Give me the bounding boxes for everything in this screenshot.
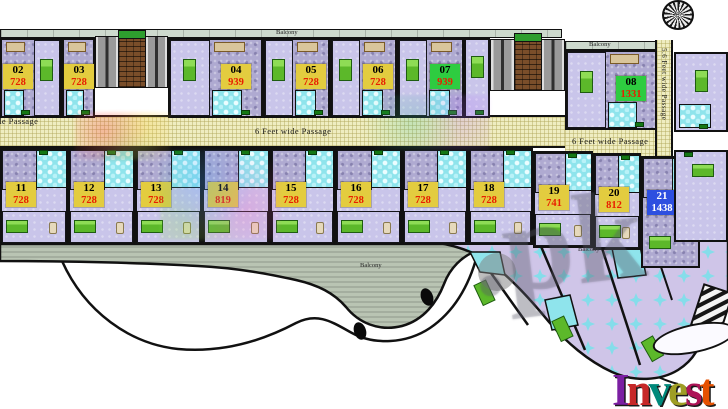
bedroom: [70, 211, 133, 243]
passage-label-vertical: 5.6 Feet wide Passage: [660, 48, 668, 120]
unit-area: 741: [539, 198, 569, 209]
passage-label-center: 6 Feet wide Passage: [255, 126, 331, 136]
unit-area: 1438: [647, 203, 677, 214]
unit-cell: 13728: [135, 148, 202, 245]
unit-number: 17: [408, 183, 438, 195]
bedroom: [595, 216, 639, 248]
bed: [6, 220, 28, 233]
balcony-label-bottom-center: Balcony: [360, 262, 382, 269]
unit-cell: 16728: [335, 148, 402, 245]
bathroom: [437, 150, 467, 188]
unit-cell: 15728: [270, 148, 335, 245]
unit-cell: 17728: [402, 148, 468, 245]
bed: [276, 220, 298, 233]
unit-label-chip: 12728: [74, 182, 104, 207]
stair-shaft: [118, 38, 146, 88]
unit-cell: 11728: [0, 148, 68, 245]
logo-letter: n: [627, 364, 649, 409]
bed: [692, 164, 714, 177]
bedroom: [337, 211, 400, 243]
unit-label-chip: 11728: [6, 182, 36, 207]
unit-cell: 12728: [68, 148, 135, 245]
bed: [649, 236, 671, 249]
elevator-bank-2: [490, 33, 565, 93]
unit-area: 728: [408, 195, 438, 206]
door: [684, 152, 693, 157]
bedroom: [137, 211, 200, 243]
logo-letter: t: [700, 364, 712, 409]
bathroom: [238, 150, 269, 188]
bedroom: [2, 211, 66, 243]
door: [107, 150, 116, 155]
figure: [574, 225, 582, 237]
unit-area: 728: [474, 195, 504, 206]
figure: [251, 222, 259, 234]
bedroom: [535, 214, 591, 246]
door: [440, 150, 449, 155]
figure: [622, 227, 630, 239]
bed: [74, 220, 96, 233]
unit-room: [674, 150, 728, 242]
unit-number: 14: [208, 183, 238, 195]
bedroom: [470, 211, 531, 243]
unit-area: 728: [141, 195, 171, 206]
bed: [208, 220, 230, 233]
door: [621, 155, 630, 160]
logo-letter: s: [685, 364, 700, 409]
elevator-car-icon: [95, 36, 119, 88]
elevator-car-icon: [541, 39, 565, 91]
bedroom: [404, 211, 466, 243]
floor-plan-canvas: Balcony Balcony 6 Feet wide Passage 6 Fe…: [0, 0, 728, 409]
elevator-car-icon: [490, 39, 515, 91]
unit-label-chip: 15728: [276, 182, 306, 207]
figure: [449, 222, 457, 234]
figure: [116, 222, 124, 234]
unit-label-chip: 19741: [539, 185, 569, 210]
logo-letter: e: [668, 364, 685, 409]
unit-number: 12: [74, 183, 104, 195]
unit-area: 728: [6, 195, 36, 206]
door: [174, 150, 183, 155]
door: [241, 150, 250, 155]
bathroom: [171, 150, 201, 188]
door: [308, 150, 317, 155]
unit-cell: 18728: [468, 148, 533, 245]
figure: [514, 222, 522, 234]
figure: [383, 222, 391, 234]
unit-area: 728: [341, 195, 371, 206]
unit-cell: 14819: [202, 148, 270, 245]
unit-number: 11: [6, 183, 36, 195]
bedroom: [204, 211, 268, 243]
door: [374, 150, 383, 155]
bathroom: [503, 150, 532, 188]
bathroom: [371, 150, 401, 188]
elevator-car-icon: [145, 36, 168, 88]
unit-number: 20: [599, 188, 629, 200]
unit-number: 16: [341, 183, 371, 195]
unit-label-chip: 17728: [408, 182, 438, 207]
unit-label-chip: 20812: [599, 187, 629, 212]
bed: [341, 220, 363, 233]
brand-logo: Invest: [612, 364, 712, 409]
unit-cell: 19741: [533, 151, 593, 248]
logo-letter: v: [649, 364, 669, 409]
passage-label-right: 6 Feet wide Passage: [572, 136, 648, 146]
stair-shaft: [514, 41, 542, 91]
logo-letter: I: [612, 364, 627, 409]
bed: [474, 220, 496, 233]
bathroom: [565, 153, 592, 191]
unit-number: 19: [539, 186, 569, 198]
passage-label-left: 6 Feet wide Passage: [0, 116, 38, 126]
bathroom: [104, 150, 134, 188]
unit-area: 812: [599, 200, 629, 211]
elevator-bank-1: [95, 30, 168, 90]
unit-cell: 20812: [593, 153, 641, 250]
balcony-label-top-left: Balcony: [276, 29, 298, 36]
unit-label-chip: 13728: [141, 182, 171, 207]
bed: [408, 220, 430, 233]
unit-number: 13: [141, 183, 171, 195]
unit-number: 18: [474, 183, 504, 195]
bathroom: [305, 150, 334, 188]
unit-label-chip: 211438: [647, 190, 677, 215]
bed: [599, 225, 621, 238]
bathroom: [36, 150, 67, 188]
figure: [49, 222, 57, 234]
unit-number: 15: [276, 183, 306, 195]
figure: [316, 222, 324, 234]
door: [39, 150, 48, 155]
balcony-label-top-right: Balcony: [589, 41, 611, 48]
unit-area: 728: [74, 195, 104, 206]
unit-area: 728: [276, 195, 306, 206]
unit-label-chip: 16728: [341, 182, 371, 207]
bedroom: [272, 211, 333, 243]
door: [568, 153, 577, 158]
spiral-staircase-icon: [662, 0, 694, 30]
bed: [539, 223, 561, 236]
unit-label-chip: 14819: [208, 182, 238, 207]
unit-label-chip: 18728: [474, 182, 504, 207]
balcony-label-bottom-right: Balcony: [578, 246, 600, 253]
unit-number: 21: [647, 191, 677, 203]
door: [506, 150, 515, 155]
bed: [141, 220, 163, 233]
unit-area: 819: [208, 195, 238, 206]
figure: [183, 222, 191, 234]
